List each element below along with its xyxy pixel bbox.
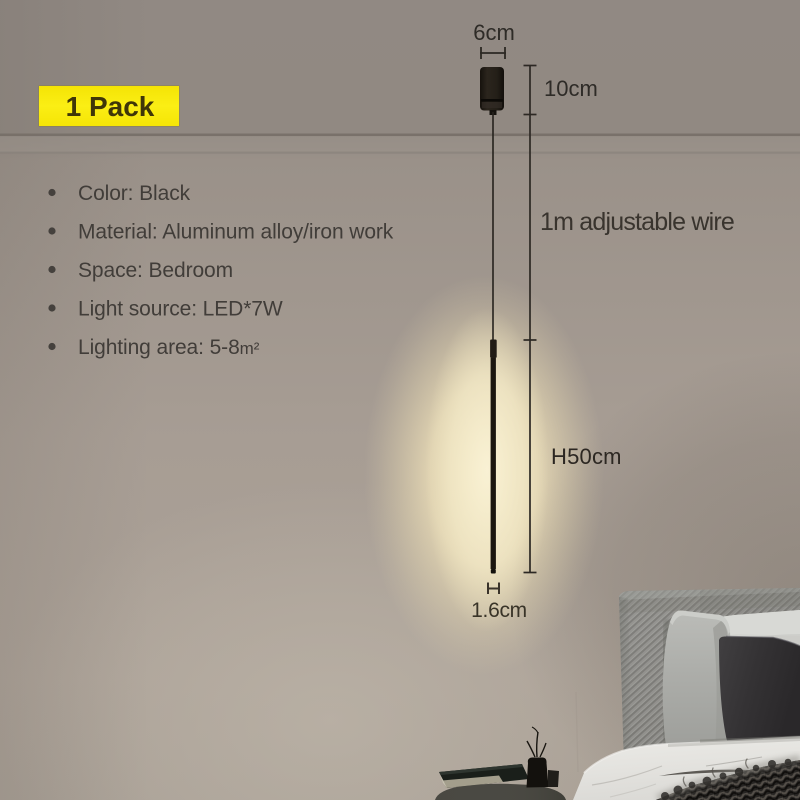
svg-text:Space: Bedroom: Space: Bedroom <box>78 259 233 282</box>
svg-text:1m adjustable wire: 1m adjustable wire <box>540 208 734 236</box>
svg-text:10cm: 10cm <box>544 76 598 101</box>
svg-text:Material: Aluminum alloy/iron: Material: Aluminum alloy/iron work <box>78 221 394 244</box>
svg-text:6cm: 6cm <box>473 20 515 45</box>
svg-text:1 Pack: 1 Pack <box>66 91 155 122</box>
svg-text:Color: Black: Color: Black <box>78 182 191 205</box>
svg-text:Light source: LED*7W: Light source: LED*7W <box>78 298 283 321</box>
svg-text:Lighting area: 5-8m²: Lighting area: 5-8m² <box>78 336 260 359</box>
